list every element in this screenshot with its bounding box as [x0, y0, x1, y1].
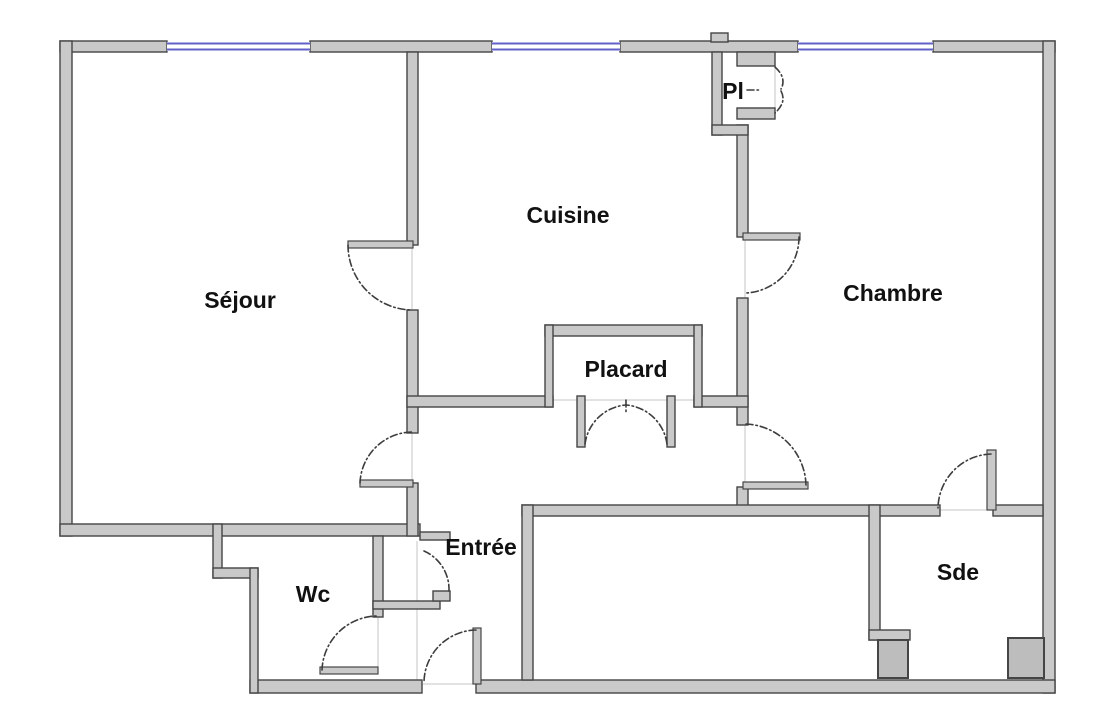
wall-pl-stub-top — [737, 52, 775, 66]
wall-right — [1043, 41, 1055, 693]
wall-cuisine-chambre — [737, 125, 748, 237]
wall-placard-door-stub — [577, 396, 585, 447]
wall-sejour-partition — [407, 310, 418, 433]
door-arc-sejour-north — [348, 245, 412, 310]
door-arc-wc — [322, 616, 377, 670]
wall-sde-stub — [869, 630, 910, 640]
door-leaf-entrance — [473, 628, 481, 684]
door-arc-cuisine-chambre — [746, 237, 799, 293]
wall-sejour-south — [60, 524, 420, 536]
wall-top-segment — [933, 41, 1055, 52]
room-label-cuisine: Cuisine — [526, 202, 609, 228]
door-leaf-wc — [320, 667, 378, 674]
window — [798, 42, 933, 51]
wall-bottom-room-left — [522, 505, 533, 680]
wall-sde-top-east — [993, 505, 1043, 516]
wall-cuisine-entree-west — [407, 396, 553, 407]
door-arc-sde — [938, 454, 991, 508]
door-arc-entrance — [424, 630, 476, 682]
room-label-entree: Entrée — [445, 534, 517, 560]
room-label-placard: Placard — [584, 356, 667, 382]
fixtures — [878, 638, 1044, 678]
wall-pl-bottom — [712, 125, 748, 135]
door-leaf-sde — [987, 450, 996, 510]
door-leaf-cuisine-chambre — [743, 233, 800, 240]
fixture-block — [878, 640, 908, 678]
wall-bottom-segment — [476, 680, 1055, 693]
windows — [167, 42, 933, 51]
wall-sde-divider — [869, 505, 880, 640]
room-label-sejour: Séjour — [204, 287, 276, 313]
door-leaf-entree-chambre — [743, 482, 808, 489]
wall-placard-left — [545, 325, 553, 407]
door-leaf-sejour-south — [360, 480, 413, 487]
fixture-block — [1008, 638, 1044, 678]
floor-plan-page: Séjour Cuisine Chambre Pl Placard Entrée… — [0, 0, 1093, 719]
interior-walls — [373, 52, 1043, 680]
wall-top-segment — [60, 41, 167, 52]
door-arc-placard-left — [585, 405, 626, 444]
wall-placard-top — [545, 325, 702, 336]
room-label-sde: Sde — [937, 559, 979, 585]
wall-corridor-bottom — [373, 601, 440, 609]
door-arc-sejour-south — [360, 432, 412, 483]
room-boundary-lines — [378, 66, 993, 684]
wall-pl-left — [712, 52, 722, 135]
wall-top-segment — [620, 41, 798, 52]
room-label-pl: Pl — [722, 78, 744, 104]
wall-corridor-step — [433, 591, 450, 601]
wall-bottom-segment — [250, 680, 422, 693]
door-arc-entree-chambre — [746, 424, 806, 485]
wall-top-segment — [310, 41, 492, 52]
window — [167, 42, 310, 51]
wall-sejour-partition — [407, 52, 418, 245]
floor-plan-drawing: Séjour Cuisine Chambre Pl Placard Entrée… — [0, 0, 1093, 719]
wall-left — [60, 41, 72, 536]
wall-wc-west — [250, 568, 258, 693]
wall-top-notch — [711, 33, 728, 42]
door-arc-placard-right — [626, 405, 667, 444]
wall-pl-stub-bottom — [737, 108, 775, 119]
window — [492, 42, 620, 51]
door-leaf-sejour-north — [348, 241, 413, 248]
wall-placard-door-stub — [667, 396, 675, 447]
room-label-wc: Wc — [296, 581, 331, 607]
exterior-walls — [60, 33, 1055, 693]
wall-sejour-partition — [407, 483, 418, 536]
door-arc-pl-fold-bottom — [775, 91, 783, 113]
door-arc-pl-fold-top — [775, 67, 783, 89]
room-label-chambre: Chambre — [843, 280, 943, 306]
wall-placard-right — [694, 325, 702, 407]
